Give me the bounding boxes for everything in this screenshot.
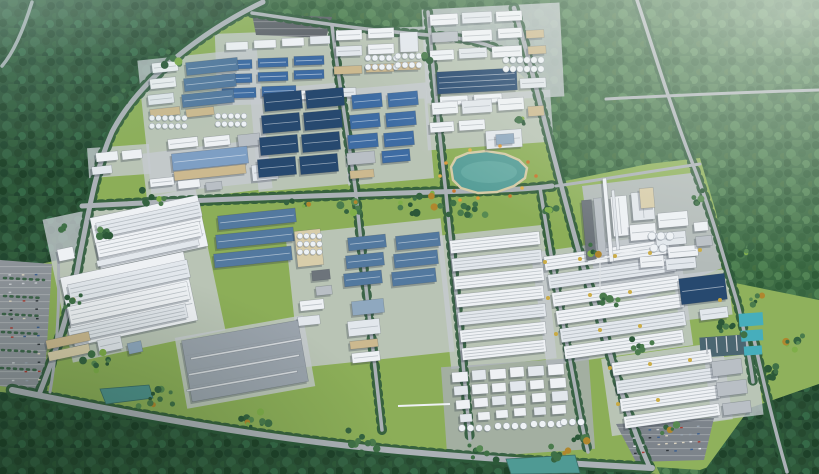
industrial-park-aerial-render xyxy=(0,0,819,474)
southwest-shade xyxy=(0,0,819,474)
aerial-scene xyxy=(0,0,819,474)
